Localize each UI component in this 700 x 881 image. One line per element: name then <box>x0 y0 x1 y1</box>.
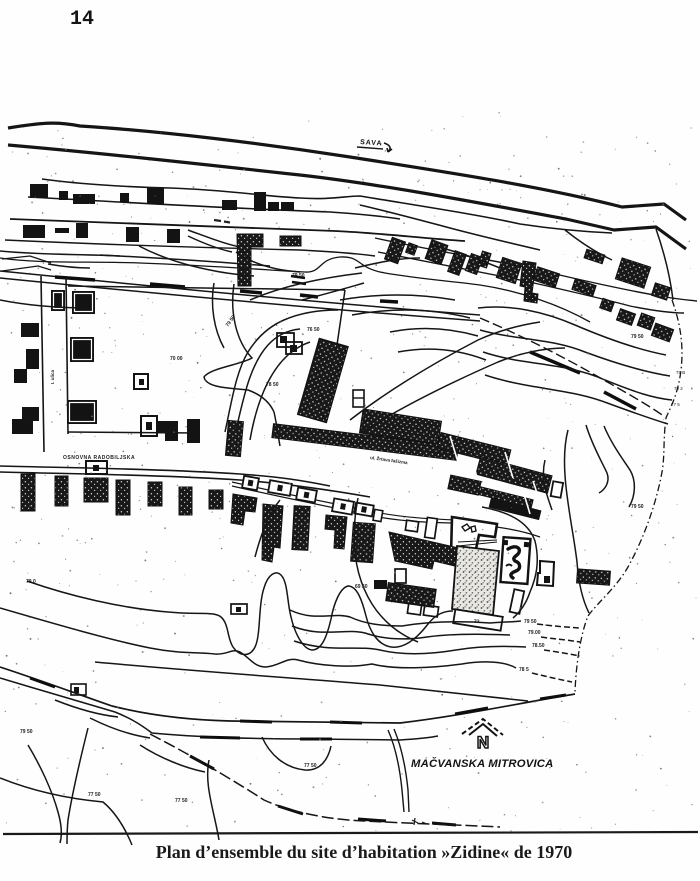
svg-text:79 B: 79 B <box>676 370 685 375</box>
svg-text:79 2: 79 2 <box>674 386 683 391</box>
svg-text:79 50: 79 50 <box>631 334 644 340</box>
svg-text:77 50: 77 50 <box>304 763 317 769</box>
svg-text:69 50: 69 50 <box>355 584 368 590</box>
svg-text:79 50: 79 50 <box>20 729 33 735</box>
svg-text:MAČVANSKA MITROVICA: MAČVANSKA MITROVICA <box>411 757 554 770</box>
svg-text:76 50: 76 50 <box>307 327 320 333</box>
svg-text:77 5: 77 5 <box>671 402 680 407</box>
svg-text:14: 14 <box>70 8 94 31</box>
svg-text:77 50: 77 50 <box>175 798 188 804</box>
svg-text:79.00: 79.00 <box>528 630 541 636</box>
svg-text:78.50: 78.50 <box>532 643 545 649</box>
svg-text:I. ulica: I. ulica <box>50 369 55 384</box>
svg-text:79 50: 79 50 <box>631 504 644 510</box>
svg-text:N: N <box>477 733 489 752</box>
svg-text:Plan d’ensemble du site d’habi: Plan d’ensemble du site d’habitation »Zi… <box>156 842 573 862</box>
svg-text:78 5: 78 5 <box>519 667 529 673</box>
svg-text:79 0: 79 0 <box>26 579 36 585</box>
svg-text:77 50: 77 50 <box>88 792 101 798</box>
svg-text:79 50: 79 50 <box>524 619 537 625</box>
svg-text:70 00: 70 00 <box>170 356 183 362</box>
svg-text:79 50: 79 50 <box>292 273 305 279</box>
